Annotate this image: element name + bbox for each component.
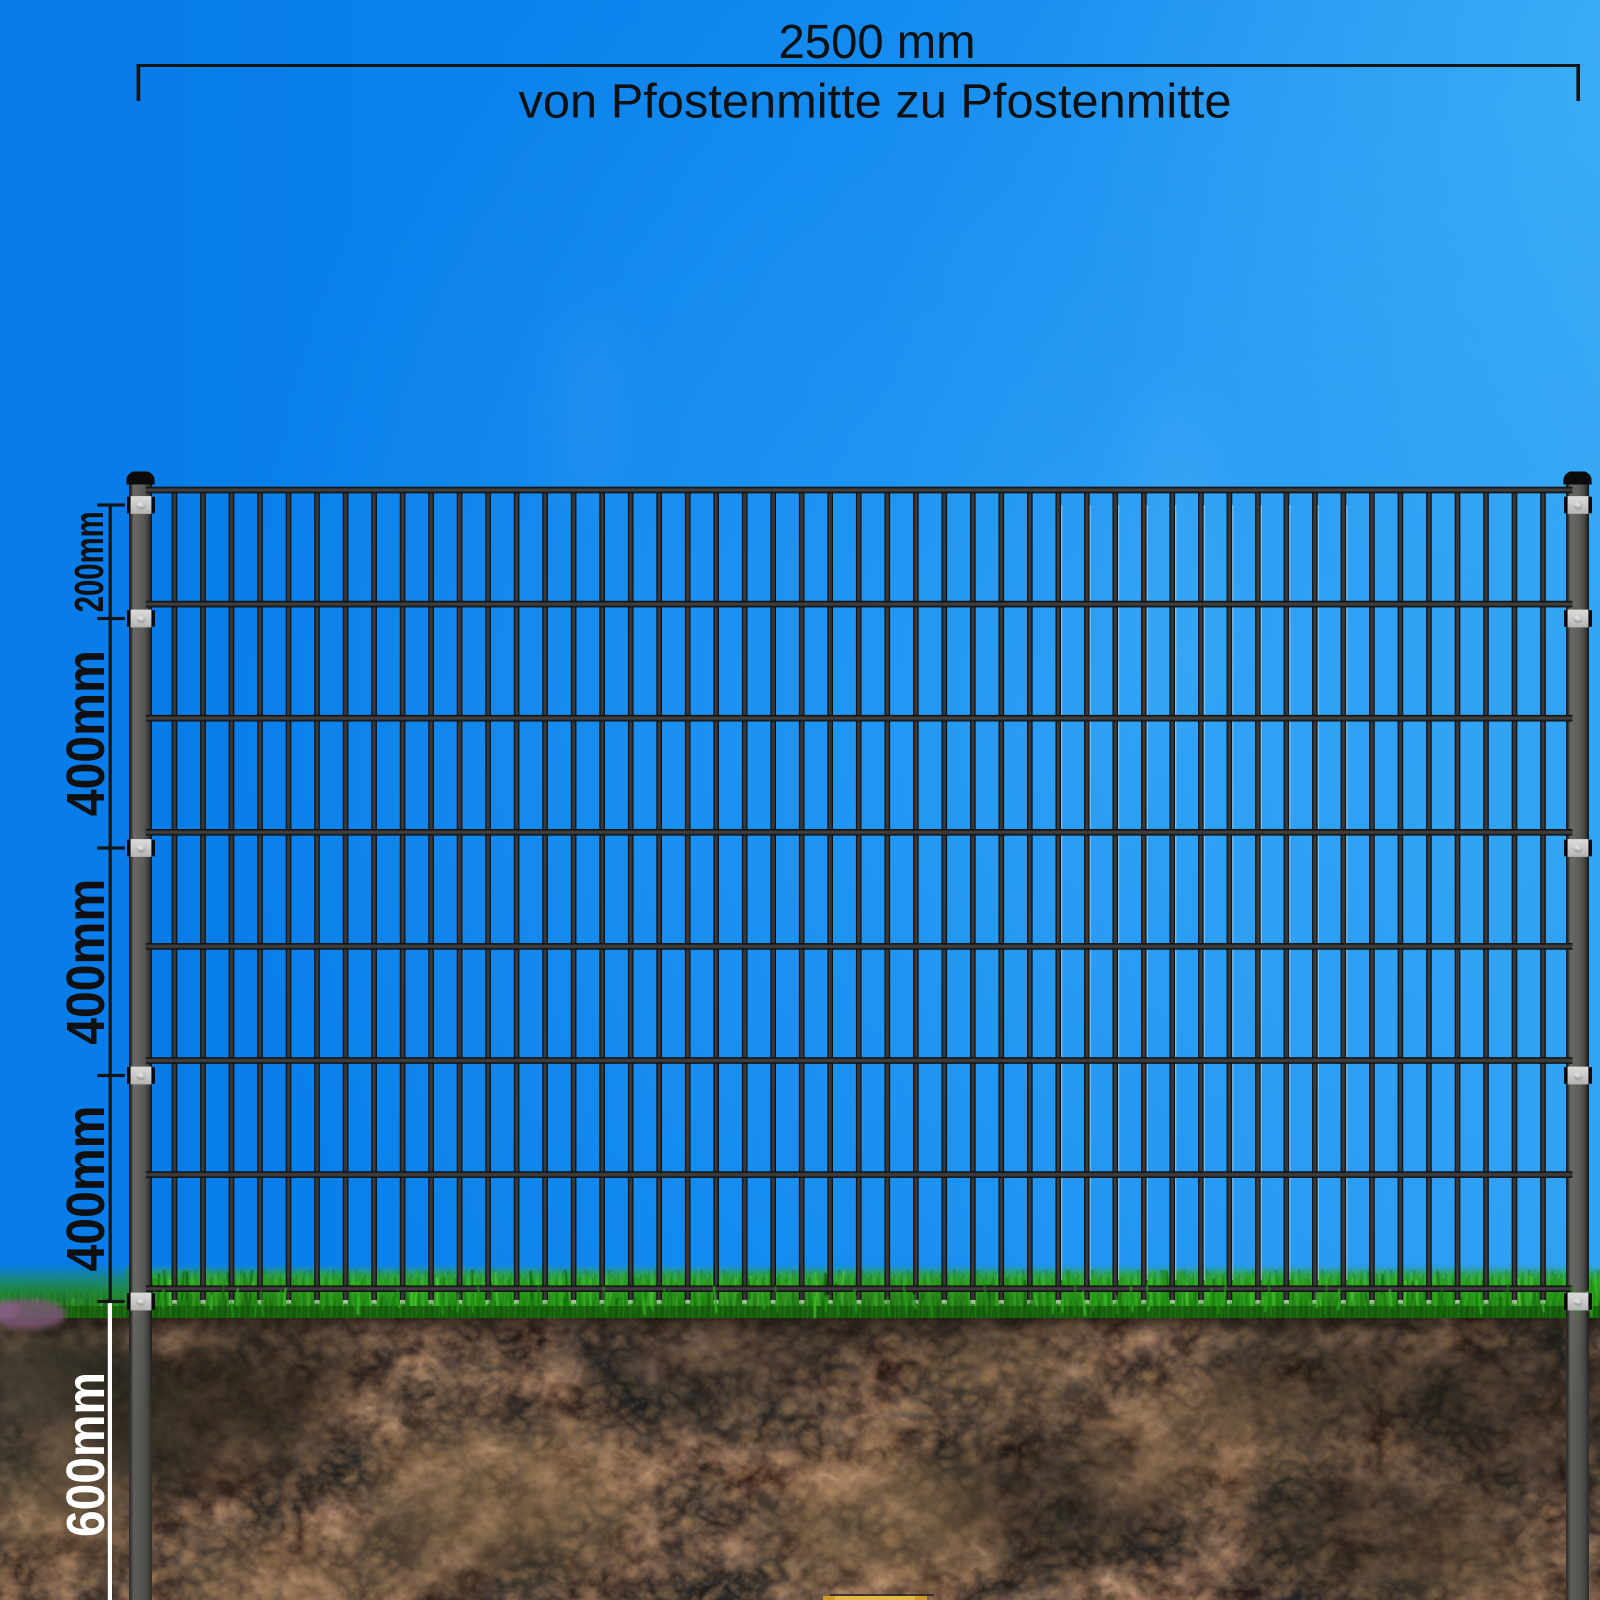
svg-text:600mm: 600mm [56,1372,116,1537]
svg-text:400mm: 400mm [56,650,116,816]
svg-text:von Pfostenmitte zu Pfostenmit: von Pfostenmitte zu Pfostenmitte [519,76,1232,129]
svg-text:400mm: 400mm [56,1106,116,1272]
svg-text:2500 mm: 2500 mm [779,16,976,69]
svg-text:200mm: 200mm [66,511,112,612]
svg-text:400mm: 400mm [56,879,116,1045]
